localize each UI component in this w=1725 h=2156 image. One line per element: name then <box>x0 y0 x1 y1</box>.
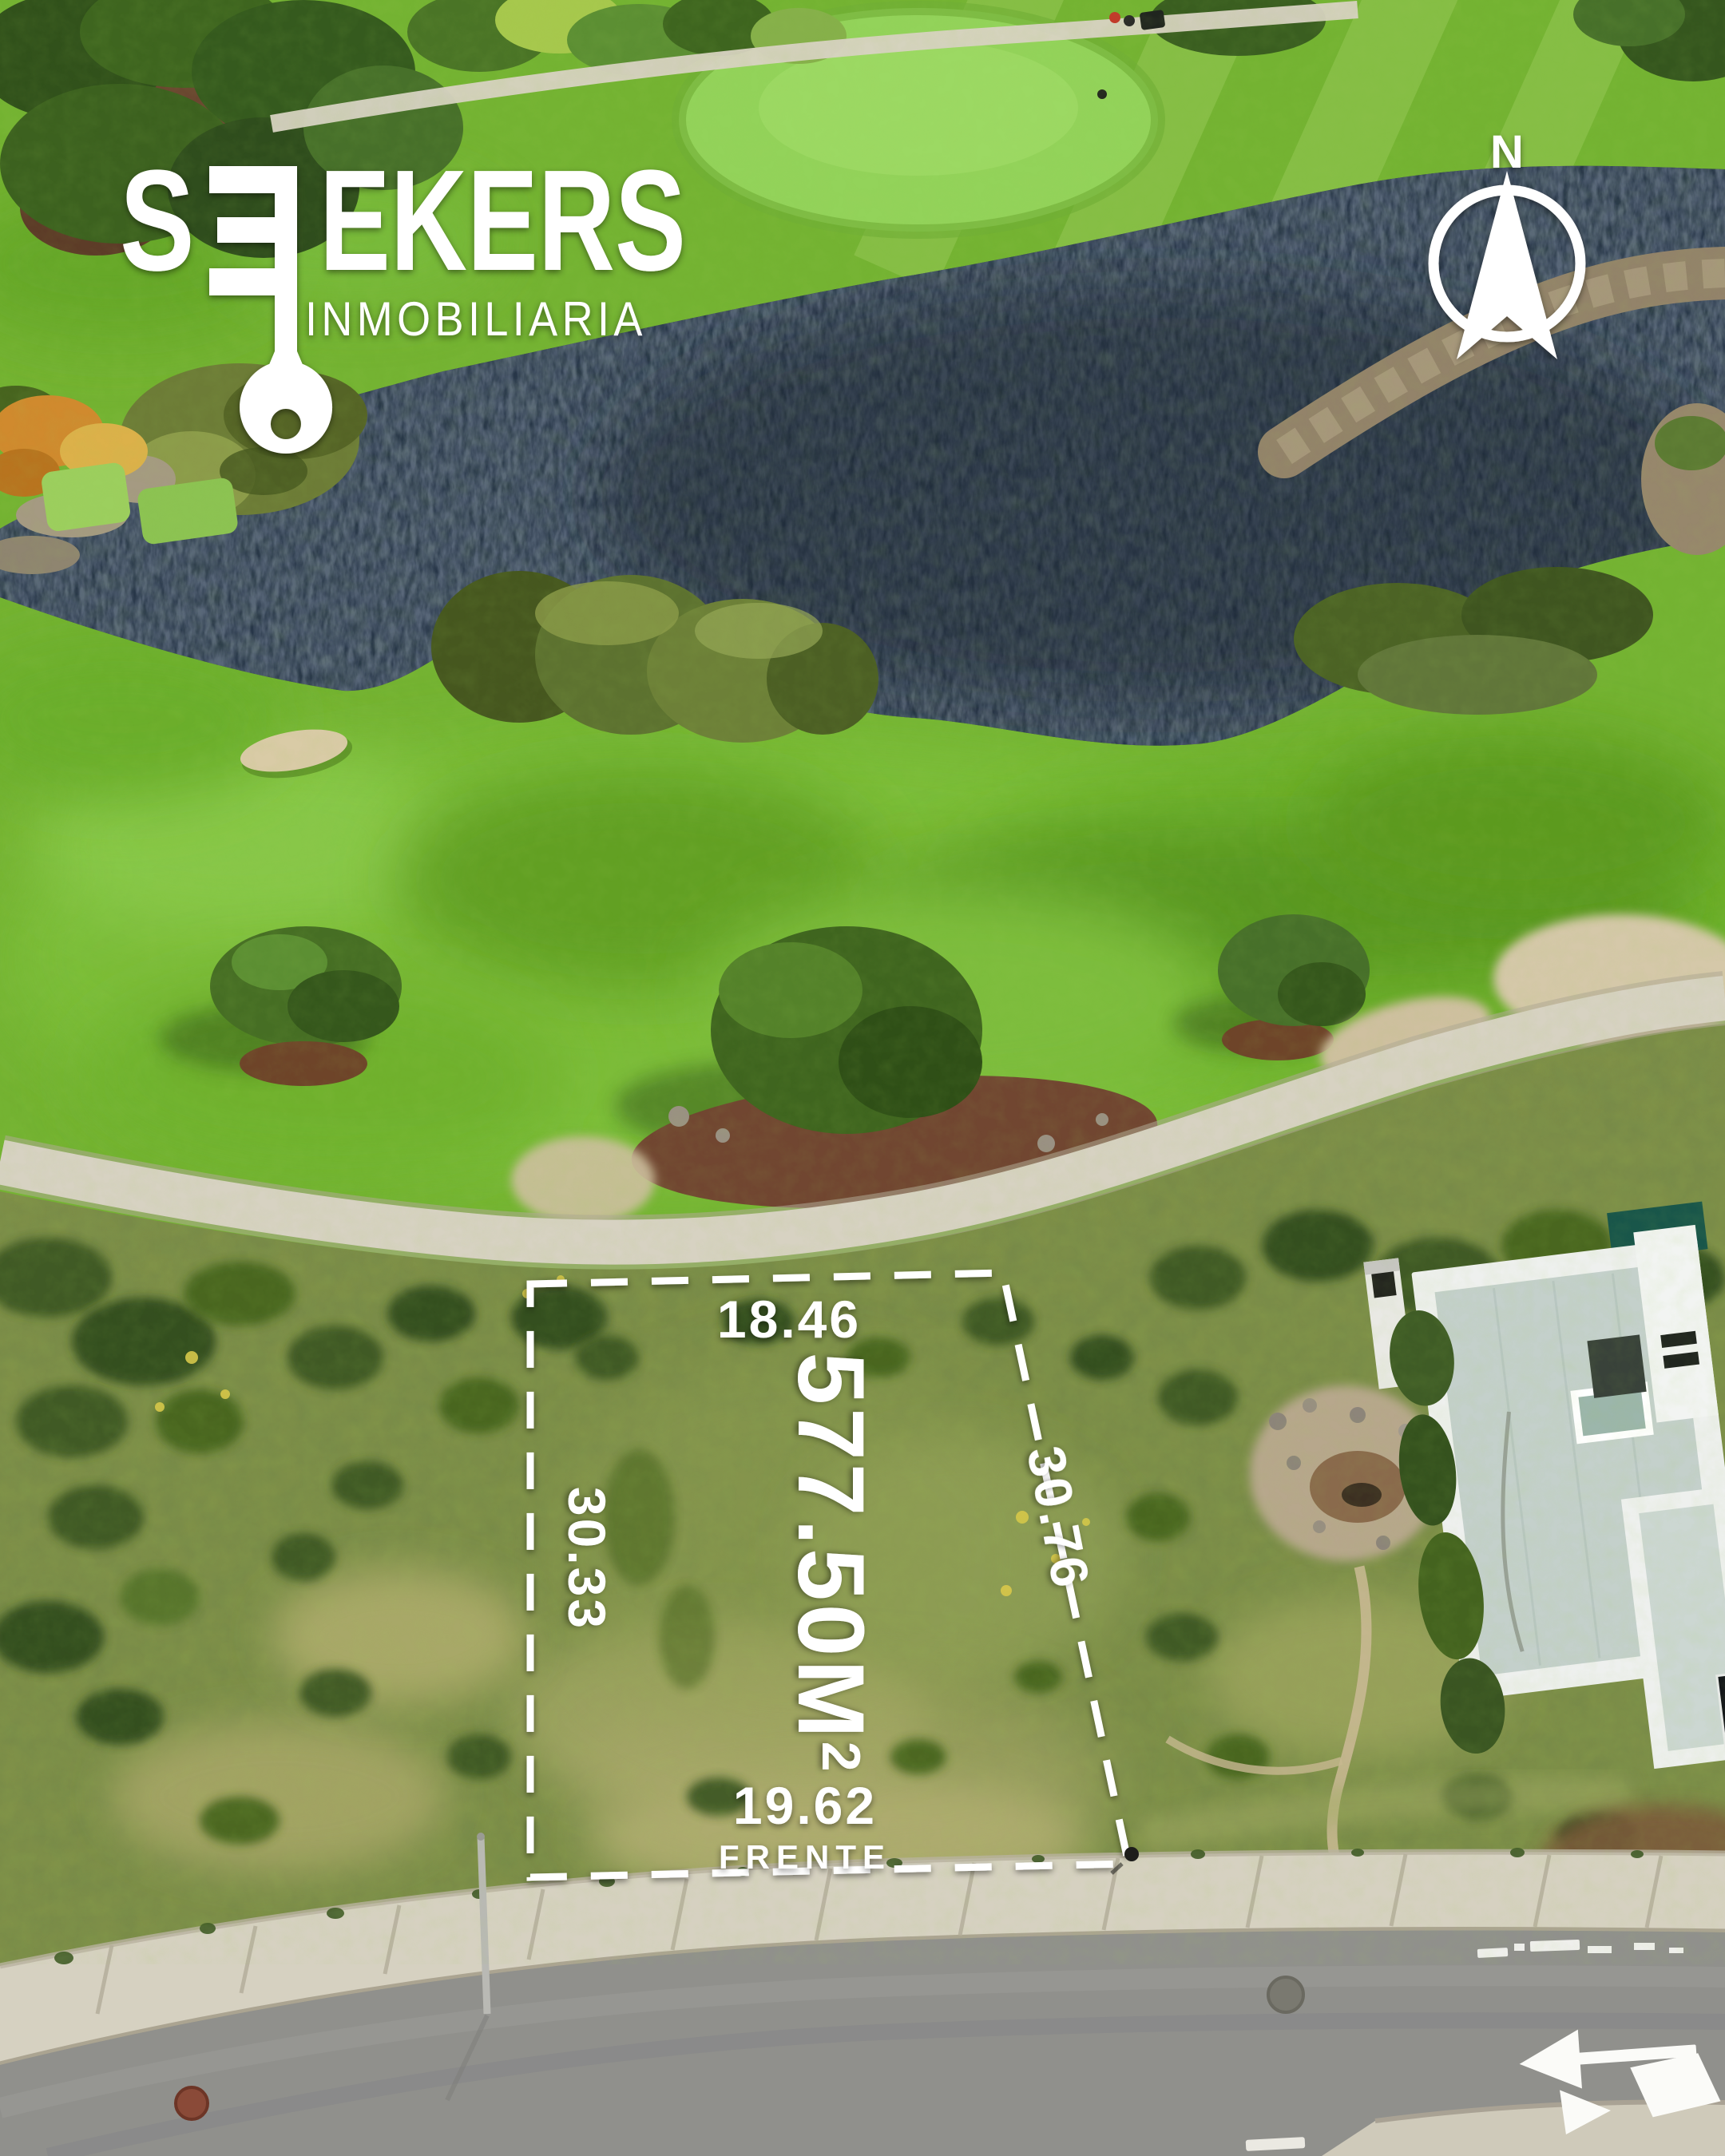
lot-measure-top: 18.46 <box>717 1290 861 1349</box>
logo-wordmark-rest: EKERS <box>319 140 686 300</box>
manhole-cover <box>176 2087 208 2119</box>
logo-subtitle: INMOBILIARIA <box>305 292 647 346</box>
aerial-lot-flyer: 18.46 30.33 30.76 577.50M2 19.62 FRENTE … <box>0 0 1725 2156</box>
manhole-cover <box>1268 1977 1303 2012</box>
lot-measure-left: 30.33 <box>557 1487 617 1631</box>
lot-front-label: FRENTE <box>719 1838 891 1876</box>
lot-front-measure: 19.62 <box>733 1776 877 1835</box>
north-label: N <box>1490 126 1524 178</box>
lot-area-superscript: 2 <box>811 1742 871 1775</box>
lot-area-value: 577.50M <box>778 1352 883 1741</box>
logo-wordmark-first: S <box>120 141 195 301</box>
aerial-photo: 18.46 30.33 30.76 577.50M2 19.62 FRENTE … <box>0 0 1725 2156</box>
lot-area-label: 577.50M2 <box>778 1352 883 1774</box>
